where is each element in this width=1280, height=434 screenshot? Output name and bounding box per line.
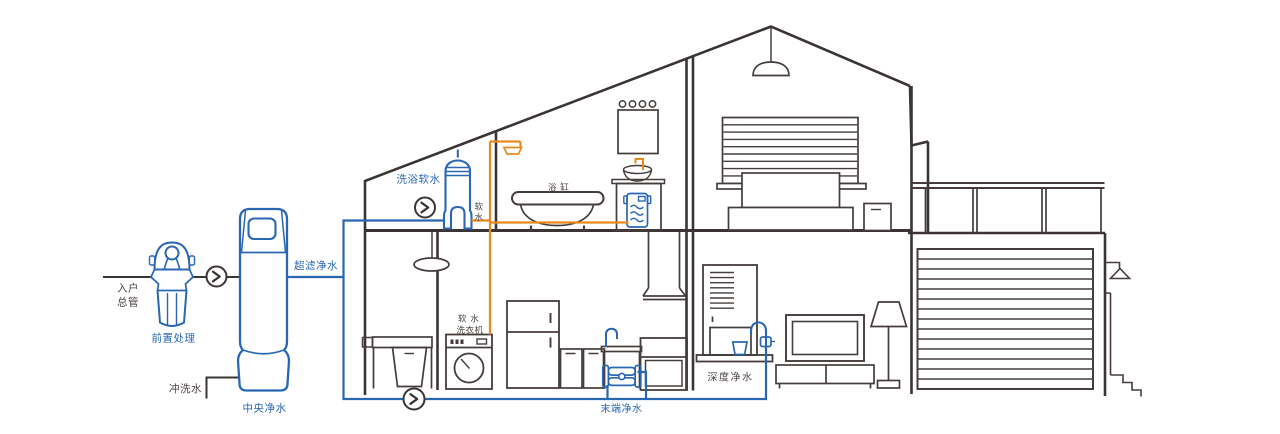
label-inlet-line1: 入户 (117, 282, 139, 295)
laundry-room-upper (414, 231, 449, 271)
central-purifier-tank (238, 209, 289, 391)
label-terminal-purifier: 末端净水 (601, 402, 643, 415)
wall-lamp-icon (1111, 269, 1130, 279)
refrigerator (507, 301, 559, 388)
label-prefilter: 前置处理 (152, 332, 196, 345)
bed-headboard (742, 173, 840, 208)
utility-sink (373, 337, 433, 389)
prefilter-unit (150, 243, 195, 327)
range-hood (643, 232, 686, 300)
floor-lamp (871, 302, 907, 388)
attic-softener-tank (444, 150, 472, 229)
kitchen (507, 232, 687, 391)
roof-railing (912, 183, 1105, 233)
oven (641, 338, 688, 390)
label-ultrafiltration: 超滤净水 (294, 259, 338, 272)
flush-drain-line (207, 378, 241, 399)
kitchen-faucet-icon (606, 329, 617, 347)
diagram-canvas: 入户 总管 前置处理 冲洗水 中央净水 超滤净水 洗浴软水 软 水 浴 缸 软 … (0, 0, 1280, 434)
terminal-ro-filter-unit (603, 366, 641, 388)
base-cabinets (561, 349, 605, 388)
pendant-lamp-icon (414, 258, 449, 271)
bathtub (512, 192, 604, 231)
soft-water-faucet-icon (636, 159, 644, 170)
wall-lamp-bracket (1105, 263, 1120, 269)
label-soft-washer-line2: 洗衣机 (457, 325, 484, 336)
mirror-lights (619, 101, 655, 107)
water-cup-icon (733, 342, 747, 355)
bed (729, 208, 854, 231)
flow-arrow-attic (415, 198, 435, 218)
house-water-purification-diagram: 入户 总管 前置处理 冲洗水 中央净水 超滤净水 洗浴软水 软 水 浴 缸 软 … (0, 0, 1280, 434)
label-flush-water: 冲洗水 (169, 382, 202, 395)
living-room (697, 265, 907, 389)
label-bathtub: 浴 缸 (548, 182, 569, 193)
laundry-area (363, 335, 493, 390)
tv-stand (776, 365, 874, 389)
bathroom (490, 101, 665, 231)
dispenser-faucet-icon (751, 322, 766, 347)
label-soft-water-char2: 水 (475, 212, 484, 223)
washing-machine (446, 335, 492, 390)
label-inlet-line2: 总管 (117, 296, 139, 309)
flow-arrow-inlet (207, 267, 227, 287)
label-soft-water-char1: 软 (475, 202, 484, 213)
garage (918, 249, 1142, 397)
label-soft-washer-line1: 软 水 (458, 314, 479, 325)
mirror (618, 110, 658, 154)
purified-water-pipes (287, 221, 775, 400)
label-central-purifier: 中央净水 (243, 402, 287, 415)
label-bath-softener: 洗浴软水 (397, 173, 441, 186)
bedroom (717, 27, 891, 231)
nightstand (864, 204, 891, 231)
flow-arrow-floor (404, 389, 425, 410)
tv (786, 315, 864, 361)
label-deep-purifier: 深度净水 (708, 371, 754, 384)
entry-steps (1111, 375, 1142, 397)
pendant-lamp-icon (753, 62, 789, 76)
